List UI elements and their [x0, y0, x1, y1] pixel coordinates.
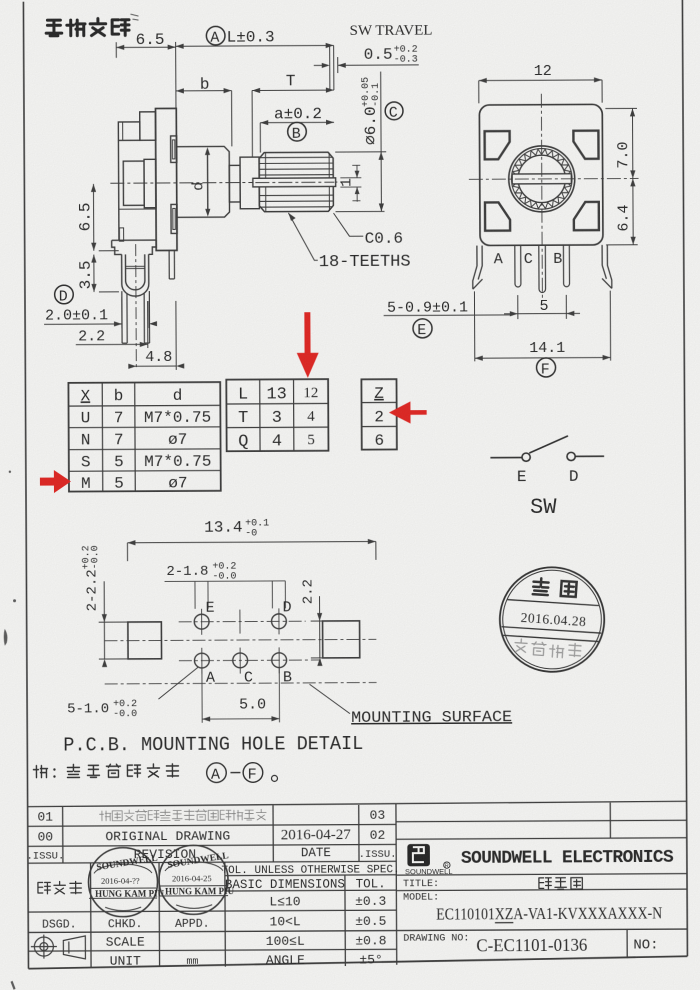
svg-text:L: L [238, 386, 248, 405]
svg-text:4.8: 4.8 [145, 349, 172, 366]
svg-text:-0.1: -0.1 [371, 83, 382, 107]
svg-text:HUNG KAM PIU: HUNG KAM PIU [95, 888, 165, 898]
svg-text:E: E [417, 322, 426, 339]
svg-text:2016.04.28: 2016.04.28 [520, 610, 587, 629]
svg-text:-0.3: -0.3 [394, 55, 418, 66]
svg-text:±0.5: ±0.5 [355, 914, 386, 929]
svg-text:DRAWING NO:: DRAWING NO: [403, 933, 469, 944]
svg-text:TITLE:: TITLE: [403, 879, 439, 890]
svg-text:APPD.: APPD. [175, 918, 210, 931]
svg-text:C: C [244, 670, 253, 687]
svg-text:-0.0: -0.0 [113, 709, 137, 720]
svg-text:F: F [248, 766, 257, 783]
svg-text:T: T [286, 72, 296, 90]
svg-text:D: D [59, 288, 68, 305]
svg-text:B: B [553, 251, 562, 268]
svg-text:X: X [81, 387, 91, 405]
svg-text:2.2: 2.2 [300, 579, 316, 604]
svg-text:TOL. UNLESS OTHERWISE SPEC.: TOL. UNLESS OTHERWISE SPEC. [221, 864, 399, 877]
svg-text:E: E [517, 468, 527, 486]
svg-text:A: A [211, 767, 220, 784]
svg-text:R: R [445, 864, 449, 870]
svg-text:14.1: 14.1 [529, 340, 565, 357]
svg-text:HUNG KAM PIU: HUNG KAM PIU [165, 886, 235, 896]
svg-text:Q: Q [238, 433, 248, 452]
svg-text:UNIT: UNIT [110, 954, 141, 969]
svg-text:6.5: 6.5 [76, 203, 94, 232]
svg-text:B: B [283, 669, 292, 686]
svg-text:A: A [494, 251, 503, 268]
svg-text:5: 5 [307, 432, 315, 448]
svg-text:01: 01 [37, 810, 53, 825]
svg-text:L≤10: L≤10 [269, 894, 300, 909]
svg-text:NO:: NO: [633, 937, 658, 953]
svg-text:2.0±0.1: 2.0±0.1 [45, 307, 108, 324]
svg-text:TOL.: TOL. [356, 877, 386, 891]
svg-text:D: D [569, 468, 579, 486]
svg-text:D: D [283, 599, 292, 616]
svg-text:ORIGINAL DRAWING: ORIGINAL DRAWING [105, 829, 230, 845]
svg-text:DATE: DATE [301, 846, 331, 860]
svg-text:MOUNTING SURFACE: MOUNTING SURFACE [351, 708, 512, 727]
svg-text:a±0.2: a±0.2 [274, 105, 322, 123]
svg-text:C: C [524, 251, 533, 268]
svg-text:ø7: ø7 [168, 431, 187, 449]
svg-text:T: T [238, 409, 248, 428]
svg-text:10<L: 10<L [269, 914, 300, 929]
svg-text:SW TRAVEL: SW TRAVEL [350, 23, 433, 39]
svg-text:5: 5 [539, 298, 548, 315]
svg-text:7: 7 [114, 409, 124, 427]
svg-text:L±0.3: L±0.3 [227, 28, 275, 46]
svg-text:A: A [210, 30, 219, 47]
svg-text:±0.3: ±0.3 [355, 894, 386, 909]
svg-text:100≤L: 100≤L [266, 934, 305, 949]
svg-text:BASIC DIMENSIONS: BASIC DIMENSIONS [225, 878, 345, 893]
svg-text:A: A [206, 670, 215, 687]
svg-text:b: b [200, 76, 210, 94]
svg-text:MODEL:: MODEL: [403, 893, 439, 904]
svg-text:EC110101XZA-VA1-KVXXXAXXX-N: EC110101XZA-VA1-KVXXXAXXX-N [436, 903, 662, 923]
svg-text:1: 1 [338, 178, 355, 187]
svg-text:-0: -0 [245, 528, 257, 539]
svg-text:6.4: 6.4 [615, 205, 632, 232]
svg-text:-0.0: -0.0 [90, 545, 101, 569]
svg-text:SOUNDWELL ELECTRONICS: SOUNDWELL ELECTRONICS [461, 848, 674, 869]
svg-text:M7*0.75: M7*0.75 [144, 409, 211, 427]
svg-text:5: 5 [114, 475, 124, 493]
svg-text:-0.0: -0.0 [212, 572, 236, 583]
svg-text:13: 13 [266, 385, 287, 404]
svg-text:.ISSU.: .ISSU. [26, 851, 64, 863]
svg-text:5-0.9±0.1: 5-0.9±0.1 [387, 299, 468, 316]
svg-text:M: M [81, 475, 91, 493]
svg-text:Z: Z [374, 385, 384, 403]
svg-text:±0.8: ±0.8 [355, 933, 386, 948]
svg-text:∅6.0: ∅6.0 [362, 106, 380, 145]
svg-text:00: 00 [37, 830, 53, 845]
svg-text:03: 03 [370, 808, 386, 823]
svg-text:6.5: 6.5 [136, 31, 165, 49]
svg-text:2016-04-25: 2016-04-25 [172, 873, 212, 883]
svg-text:mm: mm [186, 957, 198, 968]
svg-text:C: C [389, 105, 398, 122]
svg-text:13.4: 13.4 [204, 519, 242, 537]
svg-text:3.5: 3.5 [77, 261, 95, 290]
svg-text:S: S [81, 453, 91, 471]
svg-text:F: F [541, 361, 550, 378]
svg-text:2: 2 [374, 408, 384, 426]
svg-text:0.5: 0.5 [364, 46, 393, 64]
svg-text:2016-04-??: 2016-04-?? [101, 876, 140, 886]
svg-text:.ISSU.: .ISSU. [359, 849, 397, 861]
svg-text:4: 4 [272, 432, 282, 451]
svg-text:18-TEETHS: 18-TEETHS [319, 253, 411, 272]
svg-text:DSGD.: DSGD. [42, 918, 77, 931]
svg-text:2.2: 2.2 [78, 328, 105, 345]
svg-text:ø7: ø7 [168, 474, 187, 492]
svg-text:5-1.0: 5-1.0 [67, 701, 109, 717]
svg-text:N: N [81, 431, 91, 449]
svg-text:C0.6: C0.6 [365, 230, 403, 248]
svg-text:U: U [81, 409, 91, 427]
svg-text:ANGLE: ANGLE [266, 953, 305, 968]
svg-text:E: E [206, 600, 215, 617]
svg-text:02: 02 [370, 828, 386, 843]
svg-text:b: b [114, 387, 124, 405]
svg-text:SCALE: SCALE [106, 935, 145, 950]
svg-text:M7*0.75: M7*0.75 [144, 453, 211, 471]
svg-text:4: 4 [307, 409, 315, 425]
svg-text:6: 6 [374, 432, 384, 450]
svg-text:P.C.B. MOUNTING HOLE DETAIL: P.C.B. MOUNTING HOLE DETAIL [63, 733, 363, 757]
svg-text:±5°: ±5° [359, 952, 382, 967]
svg-text:5.0: 5.0 [239, 696, 266, 713]
svg-text:d: d [190, 182, 207, 191]
svg-text:7.0: 7.0 [615, 142, 632, 169]
svg-text:2-1.8: 2-1.8 [166, 564, 208, 580]
svg-text:C-EC1101-0136: C-EC1101-0136 [476, 935, 587, 956]
svg-text:d: d [173, 387, 183, 405]
svg-text:5: 5 [114, 453, 124, 471]
svg-text:2-2.2: 2-2.2 [84, 569, 100, 611]
svg-text:12: 12 [534, 63, 552, 80]
svg-text:SW: SW [530, 495, 557, 520]
svg-text:CHKD.: CHKD. [108, 918, 143, 931]
svg-text:B: B [292, 126, 301, 143]
svg-text:12: 12 [303, 385, 318, 401]
svg-text:7: 7 [114, 431, 124, 449]
svg-text:3: 3 [272, 409, 282, 428]
svg-text:2016-04-27: 2016-04-27 [281, 827, 352, 843]
